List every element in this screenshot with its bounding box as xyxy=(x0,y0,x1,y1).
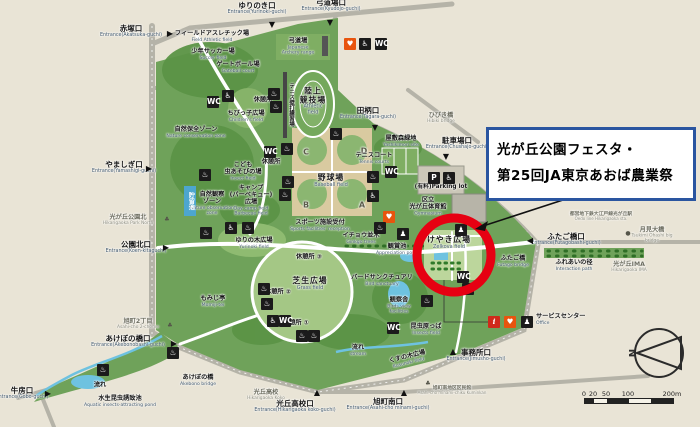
hikarigaoka-park-map: 赤塚口Entrance(Akatsuka-guchi)ゆりのき口Entrance… xyxy=(0,0,700,427)
compass-needle xyxy=(637,337,681,369)
keyaki-pond xyxy=(434,252,448,260)
athletic-field-area xyxy=(292,71,334,137)
event-callout-line2: 第25回JA東京あおば農業祭 xyxy=(497,166,685,188)
map-base xyxy=(0,0,700,427)
tennis-wall-area xyxy=(283,72,287,138)
bird-sanctuary-pond xyxy=(388,281,410,307)
scale-tick: 20 xyxy=(589,390,597,398)
aquatic-pond-area xyxy=(71,375,105,389)
scale-bar: 02050100200m xyxy=(584,390,692,404)
scale-tick-labels: 02050100200m xyxy=(584,390,692,398)
scale-tick: 0 xyxy=(582,390,586,398)
scale-bar-track xyxy=(584,398,674,404)
choryu-pond-area xyxy=(184,186,196,216)
scale-segment xyxy=(594,399,607,403)
event-callout: 光が丘公園フェスタ・ 第25回JA東京あおば農業祭 xyxy=(486,127,696,201)
scale-segment xyxy=(629,399,651,403)
event-callout-line1: 光が丘公園フェスタ・ xyxy=(497,140,685,162)
archery-area xyxy=(276,34,330,60)
scale-tick: 50 xyxy=(602,390,610,398)
archery-building xyxy=(322,36,328,56)
grass-field-area xyxy=(252,242,352,342)
scale-tick: 100 xyxy=(622,390,634,398)
compass: N xyxy=(626,324,688,386)
baseball-field-area xyxy=(292,128,372,216)
scale-segment xyxy=(585,399,594,403)
gymnasium-building xyxy=(452,194,486,222)
compass-north-label: N xyxy=(626,349,637,357)
tennis-courts-area xyxy=(382,148,418,174)
scale-tick: 200m xyxy=(663,390,682,398)
compass-circle xyxy=(635,329,683,377)
scale-segment xyxy=(607,399,629,403)
parking-area xyxy=(418,166,464,194)
scale-segment xyxy=(651,399,673,403)
